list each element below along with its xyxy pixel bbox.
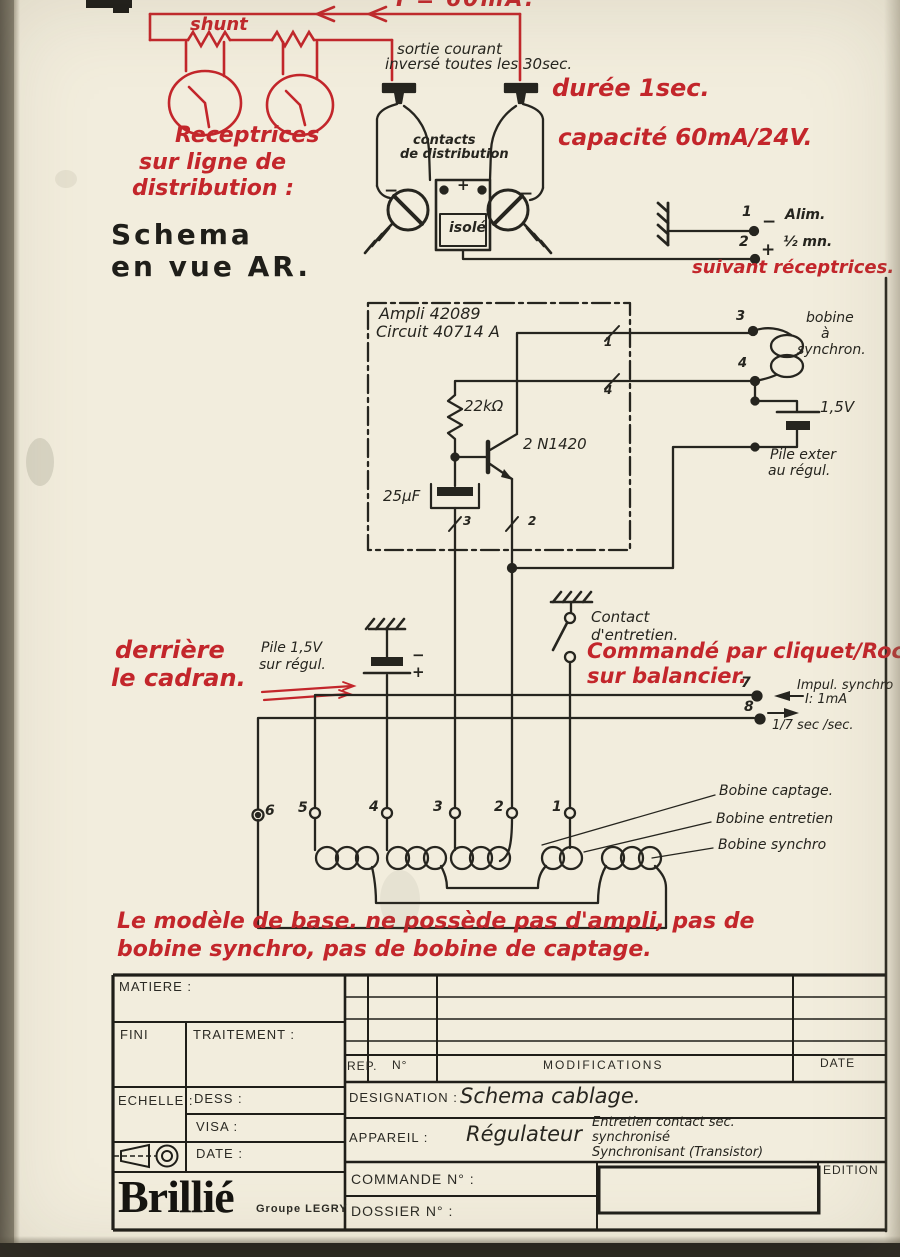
sortie-line2: inversé toutes les 30sec. (385, 56, 572, 72)
synchro-coil-label-line1: bobine (806, 311, 854, 326)
battery-symbol (364, 657, 410, 673)
base-model-note-line2: bobine synchro, pas de bobine de captage… (117, 938, 652, 962)
appareil-detail-line2: synchronisé (592, 1131, 670, 1145)
bottom-terminal-6: 6 (265, 804, 275, 819)
rep-column-header: REP. (347, 1060, 377, 1073)
coil-terminal-4: 4 (738, 357, 747, 371)
scan-edge-bottom-fade (0, 1236, 900, 1243)
transistor-symbol (488, 434, 517, 480)
frequency-label: 1/7 sec /sec. (772, 719, 854, 733)
traitement-label: TRAITEMENT : (193, 1028, 295, 1042)
dossier-label: DOSSIER N° : (351, 1204, 453, 1219)
plus-sign: + (761, 241, 775, 259)
minus-sign: − (519, 185, 533, 203)
regulator-battery-line1: Pile 1,5V (261, 641, 322, 656)
minus-sign: − (412, 647, 425, 663)
scan-artifact (113, 2, 129, 13)
view-title-line1: Schema (111, 220, 253, 250)
appareil-detail-line1: Entretien contact sec. (592, 1116, 735, 1130)
terminal1-number: 1 (742, 205, 752, 220)
ground-symbol (366, 619, 405, 629)
regulator-battery-line2: sur régul. (259, 658, 326, 673)
external-battery-line2: au régul. (768, 464, 830, 479)
receptrices-line1: Receptrices (175, 124, 319, 148)
date-column-header: DATE (820, 1057, 855, 1070)
view-title-line2: en vue AR. (111, 252, 311, 282)
derriere-line1: derrière (115, 638, 225, 664)
ampli-mark-3: 3 (463, 515, 471, 528)
dess-label: DESS : (194, 1092, 243, 1106)
designation-value: Schema cablage. (460, 1085, 640, 1108)
chassis-wall-symbol (658, 203, 668, 245)
arrow-right-icon (784, 708, 799, 718)
resistor-value: 22kΩ (464, 398, 503, 414)
paper-stain (55, 170, 77, 188)
ampli-mark-4: 4 (604, 384, 612, 397)
number-column-header: N° (392, 1059, 407, 1072)
shunt-label: shunt (190, 15, 248, 34)
resistor-symbol (448, 395, 462, 457)
modifications-column-header: MODIFICATIONS (543, 1059, 663, 1072)
date-label: DATE : (196, 1147, 243, 1161)
brand-logo: Brillié (118, 1172, 234, 1222)
shunt-resistor-symbol (272, 32, 314, 46)
contact-label-line2: d'entretien. (591, 627, 678, 643)
coil-label-entretien: Bobine entretien (716, 812, 833, 827)
bottom-terminal-2: 2 (494, 800, 504, 815)
synchro-coil-label-line2: à (821, 327, 830, 342)
projection-symbol (114, 1145, 178, 1167)
derriere-line2: le cadran. (111, 666, 246, 692)
terminal2-number: 2 (739, 235, 749, 250)
paper-stain (380, 870, 420, 930)
impulse-label-line1: Impul. synchro (797, 679, 893, 693)
paper-stain (26, 438, 54, 486)
coil-label-synchro: Bobine synchro (718, 838, 826, 853)
appareil-detail-line3: Synchronisant (Transistor) (592, 1146, 763, 1160)
commande-label: COMMANDE N° : (351, 1172, 475, 1187)
arrow-left-icon (774, 691, 790, 701)
ampli-mark-1: 1 (604, 336, 612, 349)
ampli-ref-line1: Ampli 42089 (379, 305, 481, 322)
capacitor-symbol (431, 484, 479, 508)
contacts-label-line1: contacts (413, 134, 476, 148)
scan-edge-left-fade (14, 0, 20, 1257)
edition-label: EDITION (823, 1164, 879, 1177)
matiere-label: MATIERE : (119, 980, 192, 994)
balancier-note: sur balancier. (587, 665, 747, 688)
terminal8-number: 8 (744, 700, 754, 715)
ground-symbol (524, 224, 551, 253)
external-battery-line1: Pile exter (770, 448, 836, 463)
designation-label: DESIGNATION : (349, 1091, 458, 1105)
regulator-battery (364, 619, 410, 808)
ampli-ref-line2: Circuit 40714 A (376, 323, 500, 340)
bottom-terminal-5: 5 (298, 801, 308, 816)
contacts-label-line2: de distribution (400, 148, 509, 162)
plus-sign: + (457, 177, 470, 193)
receptrices-line2: sur ligne de (139, 151, 286, 175)
terminal7-number: 7 (741, 676, 751, 691)
transistor-ref: 2 N1420 (523, 436, 587, 452)
bottom-terminal-4: 4 (369, 800, 379, 815)
ground-symbol (551, 592, 592, 602)
visa-label: VISA : (196, 1120, 238, 1134)
ampli-mark-2: 2 (528, 515, 536, 528)
receptrices-line3: distribution : (132, 177, 294, 201)
red-distribution-circuit (150, 7, 520, 700)
minus-sign: − (762, 213, 776, 231)
scan-edge-right (884, 0, 900, 1257)
coil-label-captage: Bobine captage. (719, 784, 833, 799)
contact-label-line1: Contact (591, 609, 649, 625)
echelle-label: ECHELLE : (118, 1094, 193, 1108)
plus-sign: + (412, 664, 425, 680)
scanned-schematic-sheet: I = 60mA. shunt Receptrices sur ligne de… (0, 0, 900, 1257)
current-note: I = 60mA. (396, 0, 535, 12)
base-model-note-line1: Le modèle de base. ne possède pas d'ampl… (117, 910, 754, 934)
capacitor-value: 25μF (383, 488, 420, 504)
suivant-note: suivant réceptrices. (692, 258, 894, 277)
battery-symbol (777, 412, 819, 430)
isole-label: isolé (449, 221, 486, 236)
maintaining-contact-switch (551, 592, 592, 808)
appareil-value: Régulateur (466, 1123, 582, 1146)
alim-label: Alim. (785, 208, 825, 223)
synchro-coil-label-line3: synchron. (797, 343, 866, 358)
minus-sign: − (384, 182, 398, 200)
ground-symbol (365, 224, 392, 253)
coil-symbol (771, 355, 803, 377)
half-minute-label: ½ mn. (783, 235, 832, 250)
coil-terminal-3: 3 (736, 310, 745, 324)
scan-edge-bottom (0, 1243, 900, 1257)
fini-label: FINI (120, 1028, 149, 1042)
bottom-terminal-1: 1 (552, 800, 562, 815)
bottom-terminal-3: 3 (433, 800, 443, 815)
scan-edge-left (0, 0, 14, 1257)
brand-subtitle: Groupe LEGRY (256, 1204, 348, 1216)
duration-note: durée 1sec. (552, 76, 710, 102)
capacity-note: capacité 60mA/24V. (558, 126, 812, 151)
impulse-label-line2: I: 1mA (805, 693, 847, 707)
appareil-label: APPAREIL : (349, 1131, 428, 1145)
battery-voltage: 1,5V (820, 399, 854, 415)
